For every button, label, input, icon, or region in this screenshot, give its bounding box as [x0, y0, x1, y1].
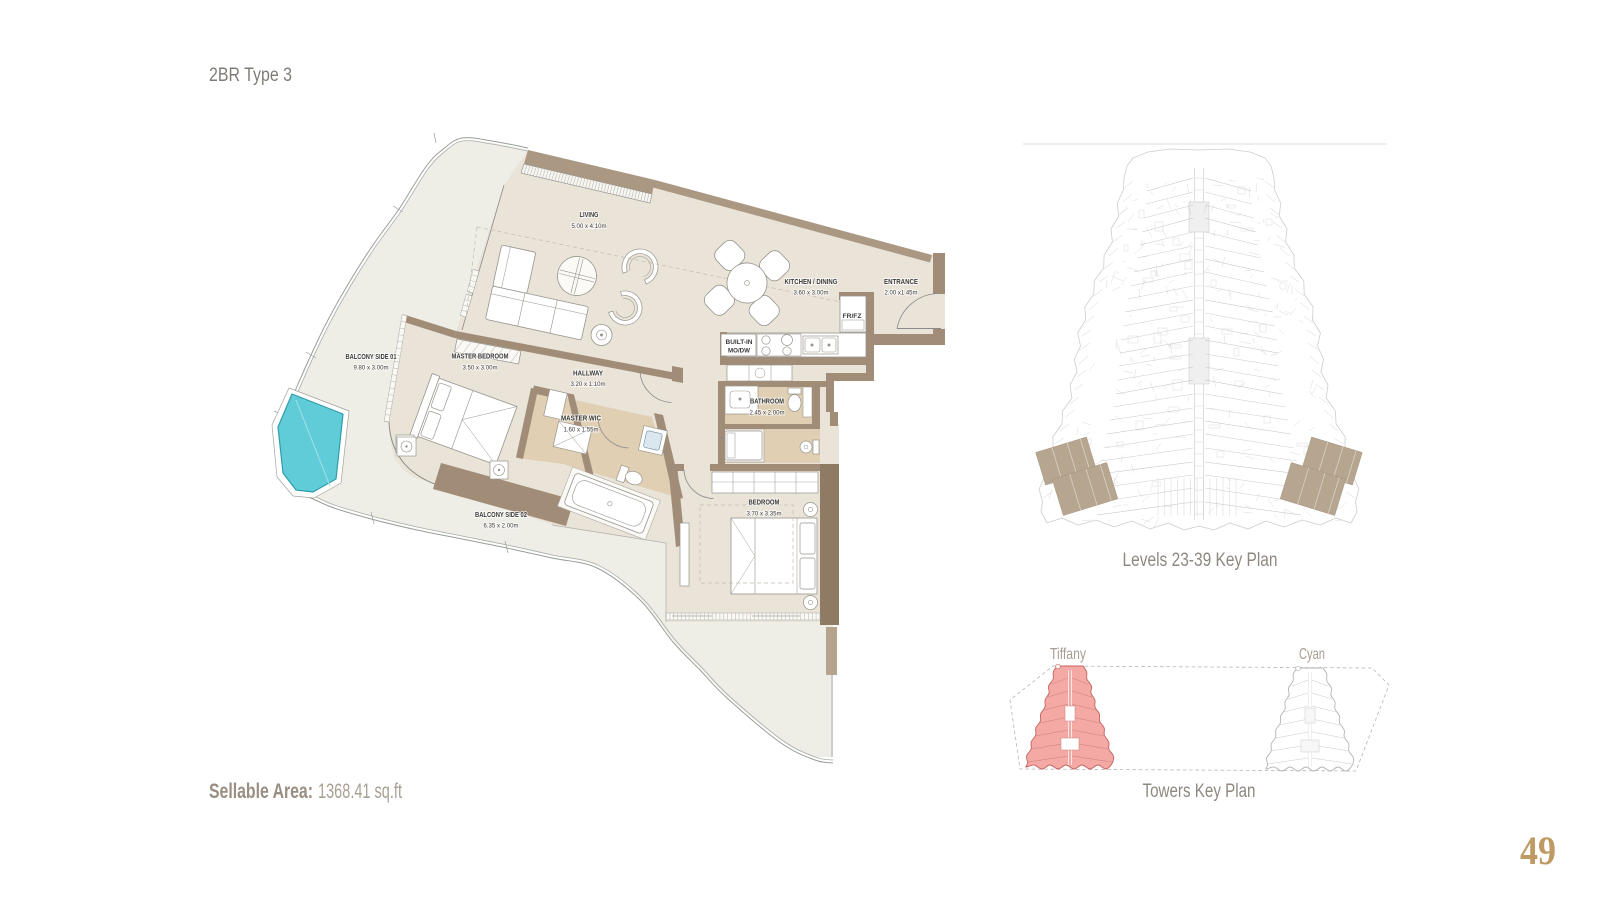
svg-text:1.60 x 1.55m: 1.60 x 1.55m	[564, 427, 599, 434]
svg-text:Tiffany: Tiffany	[1050, 646, 1086, 663]
svg-text:LIVING: LIVING	[580, 212, 599, 219]
svg-text:2BR Type 3: 2BR Type 3	[209, 65, 292, 86]
svg-text:BATHROOM: BATHROOM	[750, 399, 784, 406]
svg-text:MASTER WIC: MASTER WIC	[561, 416, 601, 423]
svg-text:HALLWAY: HALLWAY	[573, 371, 603, 378]
svg-text:6.35 x 2.00m: 6.35 x 2.00m	[484, 523, 519, 530]
svg-text:MASTER BEDROOM: MASTER BEDROOM	[452, 354, 509, 361]
svg-text:Towers Key Plan: Towers Key Plan	[1143, 781, 1256, 802]
svg-text:BUILT-IN: BUILT-IN	[726, 339, 754, 346]
svg-text:3.60 x 3.00m: 3.60 x 3.00m	[794, 290, 829, 297]
svg-text:FR/FZ: FR/FZ	[843, 313, 862, 320]
svg-text:49: 49	[1520, 828, 1556, 873]
svg-text:BALCONY SIDE 01: BALCONY SIDE 01	[346, 354, 397, 361]
svg-text:BALCONY SIDE 02: BALCONY SIDE 02	[475, 512, 527, 519]
svg-text:3.20 x 1.10m: 3.20 x 1.10m	[571, 381, 606, 388]
svg-text:Cyan: Cyan	[1299, 646, 1325, 663]
svg-text:Levels 23-39 Key Plan: Levels 23-39 Key Plan	[1123, 550, 1278, 571]
svg-text:KITCHEN / DINING: KITCHEN / DINING	[785, 279, 838, 286]
svg-text:BEDROOM: BEDROOM	[749, 500, 780, 507]
svg-text:MO/DW: MO/DW	[728, 348, 750, 355]
svg-text:Sellable Area:1368.41 sq.ft: Sellable Area:1368.41 sq.ft	[209, 780, 402, 803]
svg-text:2.45 x 2.00m: 2.45 x 2.00m	[750, 410, 785, 417]
svg-text:9.80 x 3.00m: 9.80 x 3.00m	[354, 365, 389, 372]
svg-text:3.50 x 3.00m: 3.50 x 3.00m	[463, 365, 498, 372]
svg-text:2.00 x1.45m: 2.00 x1.45m	[885, 290, 918, 297]
svg-text:3.70 x 3.35m: 3.70 x 3.35m	[747, 511, 782, 518]
svg-text:5.00 x 4.10m: 5.00 x 4.10m	[572, 223, 607, 230]
svg-text:ENTRANCE: ENTRANCE	[884, 279, 918, 286]
